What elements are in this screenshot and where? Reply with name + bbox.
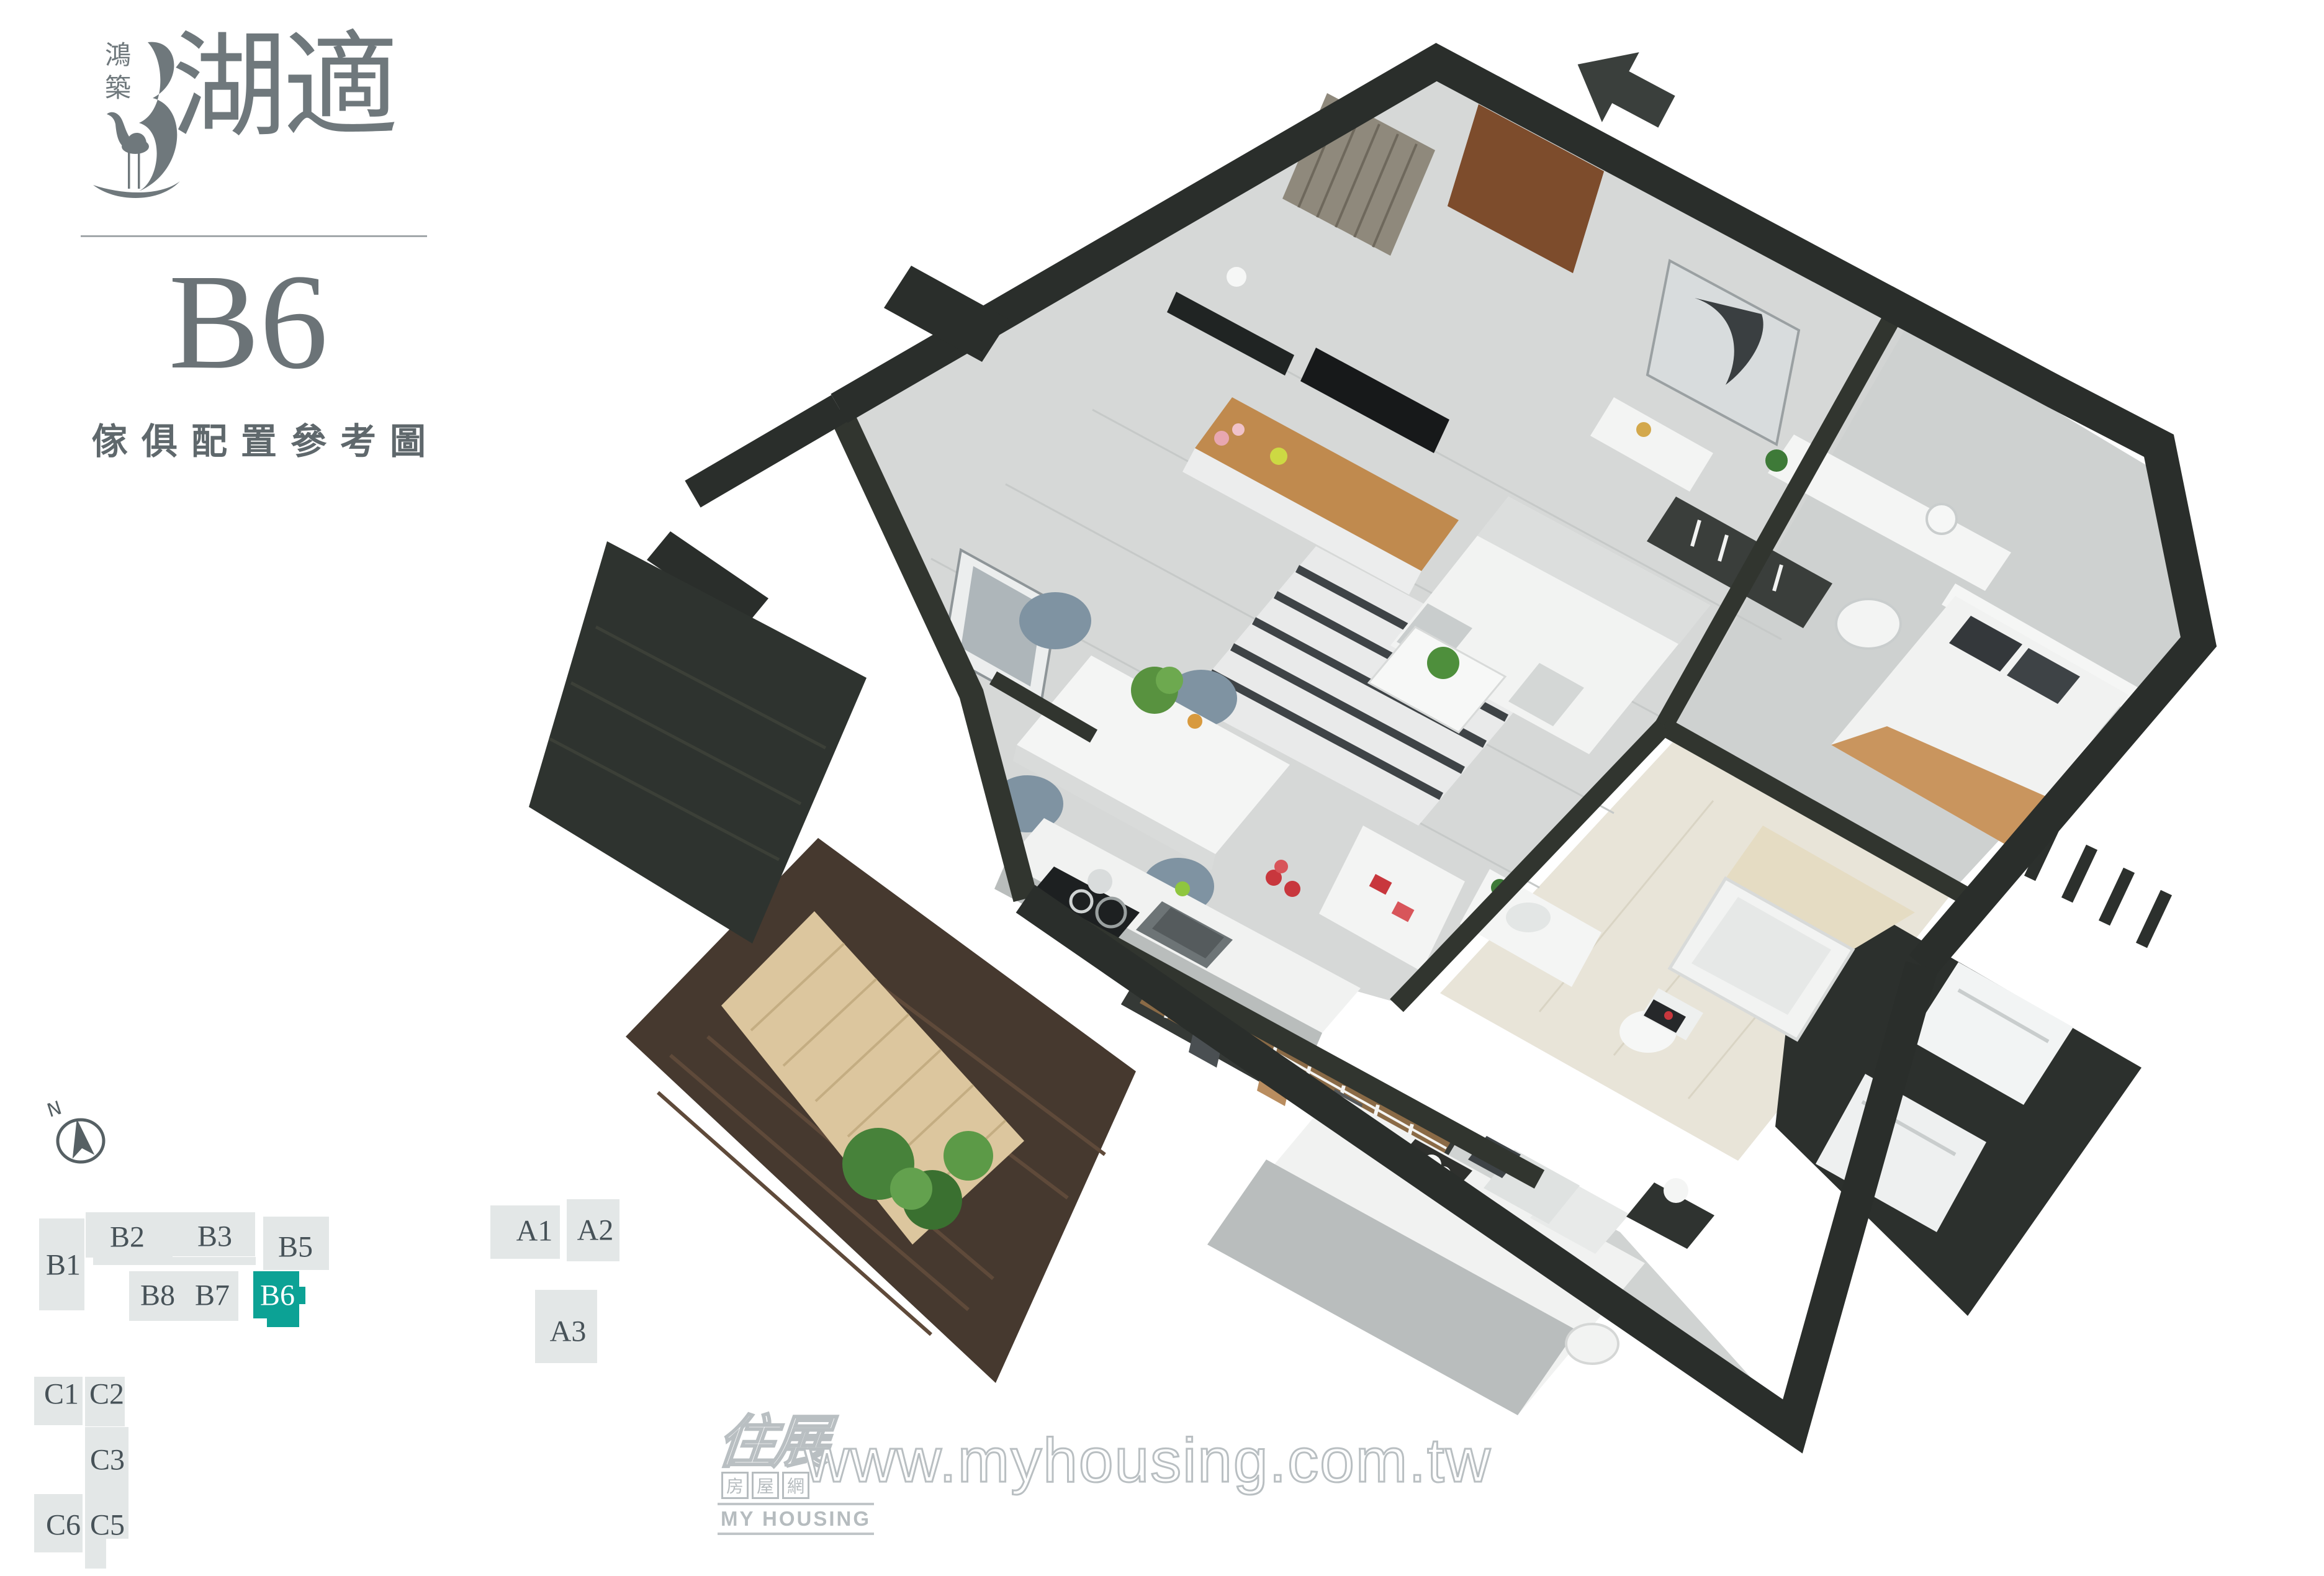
table-plant [1427, 647, 1459, 679]
sitemap-block-b6-tail [267, 1317, 299, 1327]
sitemap-label-b3: B3 [197, 1220, 232, 1254]
desk-lamp [1927, 504, 1957, 534]
sitemap-label-c2: C2 [89, 1377, 124, 1412]
fruit-bowl [1187, 714, 1202, 729]
sitemap-label-a1: A1 [516, 1214, 553, 1248]
north-compass-icon: N [45, 1097, 104, 1162]
round-stool [1566, 1324, 1618, 1364]
console-deco [1636, 422, 1651, 437]
bedside-lamp [1664, 1178, 1688, 1203]
sitemap-label-a2: A2 [577, 1214, 614, 1248]
logo-box-wu: 屋 [752, 1472, 779, 1499]
sitemap-label-b1: B1 [46, 1248, 81, 1282]
sitemap-label-c1: C1 [44, 1377, 79, 1412]
basin [1506, 903, 1551, 932]
dining-chair [1019, 592, 1091, 649]
sitemap-block-c5-tail [85, 1539, 106, 1569]
pot [1088, 869, 1112, 894]
sitemap-label-b8: B8 [140, 1279, 175, 1313]
sitemap-block-strip [93, 1257, 256, 1265]
desk-plant [1765, 449, 1788, 472]
unit-title: B6 [112, 253, 385, 390]
vase [1227, 267, 1246, 287]
project-name: 湖適 [171, 30, 395, 145]
sitemap-label-b7: B7 [195, 1279, 230, 1313]
sitemap-label-b5: B5 [278, 1230, 313, 1264]
header-divider [81, 235, 427, 237]
myhousing-logo-en: MY HOUSING [718, 1503, 874, 1535]
watermark-url: www.myhousing.com.tw [804, 1425, 1492, 1497]
plan-subtitle: 傢俱配置參考圖 [92, 412, 439, 464]
deco-pink [1214, 431, 1229, 446]
sitemap-label-c6: C6 [46, 1508, 81, 1542]
sitemap-label-b2: B2 [110, 1220, 145, 1254]
logo-box-fang: 房 [721, 1472, 749, 1499]
deco-flowers [1270, 448, 1287, 465]
sitemap-label-c3: C3 [90, 1443, 125, 1477]
compass-north-label: N [45, 1097, 65, 1122]
sitemap-label-b6-highlighted: B6 [260, 1279, 295, 1313]
desk-chair [1836, 599, 1901, 649]
sitemap-label-a3: A3 [550, 1315, 587, 1349]
sitemap-block-b6-notch [299, 1287, 305, 1304]
myhousing-logo-boxes: 房 屋 網 [721, 1472, 809, 1499]
brochure-page: N 鴻築 湖適 B6 傢俱配置參考圖 [0, 0, 2324, 1576]
railing-slats [2030, 826, 2166, 945]
glass-cup [1175, 881, 1190, 896]
sitemap-label-c5: C5 [90, 1508, 125, 1542]
